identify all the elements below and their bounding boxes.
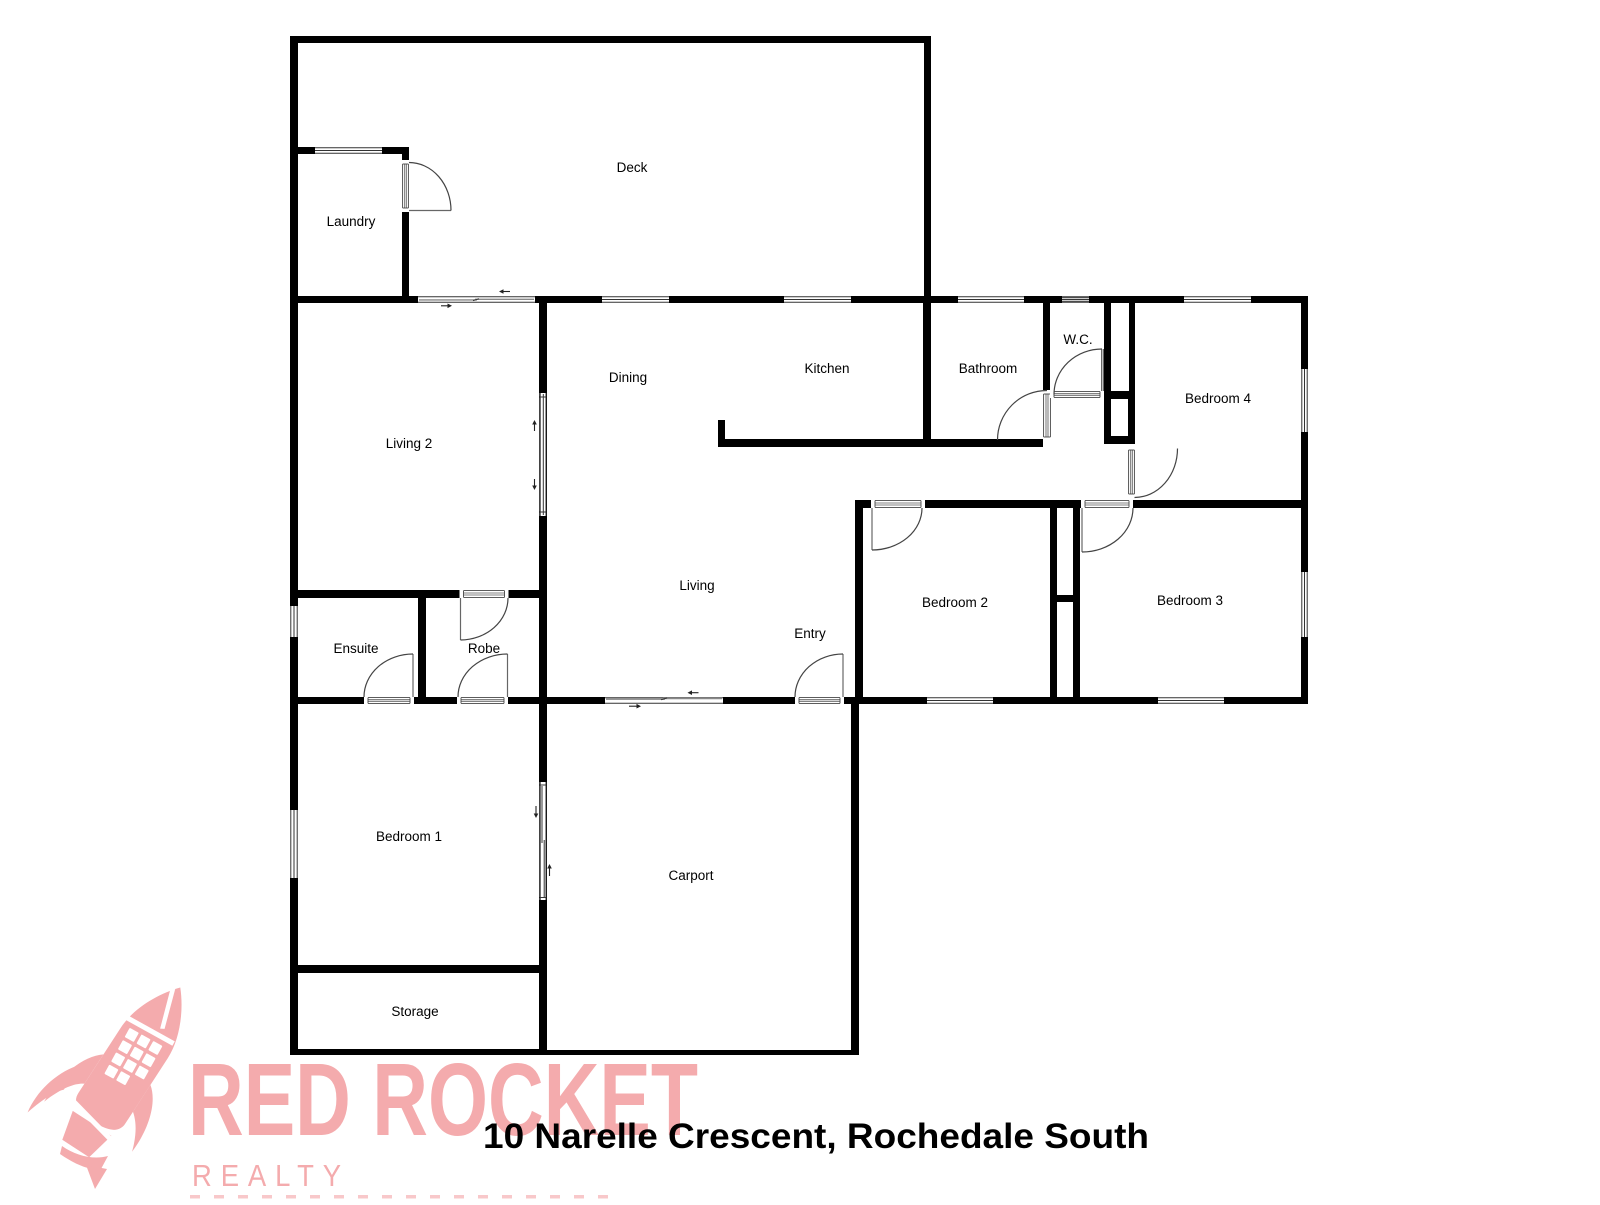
- svg-text:Living 2: Living 2: [386, 436, 433, 451]
- svg-text:Bedroom 3: Bedroom 3: [1157, 593, 1223, 608]
- svg-text:Ensuite: Ensuite: [333, 641, 378, 656]
- svg-text:Living: Living: [679, 578, 714, 593]
- svg-text:Laundry: Laundry: [327, 214, 376, 229]
- svg-text:Bedroom 4: Bedroom 4: [1185, 391, 1252, 406]
- svg-text:Robe: Robe: [468, 641, 500, 656]
- svg-text:Storage: Storage: [391, 1004, 438, 1019]
- svg-text:Kitchen: Kitchen: [804, 361, 849, 376]
- svg-text:Bedroom 2: Bedroom 2: [922, 595, 988, 610]
- svg-text:REALTY: REALTY: [192, 1158, 350, 1193]
- svg-text:Carport: Carport: [668, 868, 713, 883]
- svg-text:Dining: Dining: [609, 370, 647, 385]
- svg-text:Deck: Deck: [617, 160, 648, 175]
- svg-text:Entry: Entry: [794, 626, 826, 641]
- svg-text:Bedroom 1: Bedroom 1: [376, 829, 442, 844]
- svg-text:W.C.: W.C.: [1063, 332, 1092, 347]
- svg-text:Bathroom: Bathroom: [959, 361, 1018, 376]
- svg-text:10 Narelle Crescent, Rochedale: 10 Narelle Crescent, Rochedale South: [483, 1117, 1149, 1156]
